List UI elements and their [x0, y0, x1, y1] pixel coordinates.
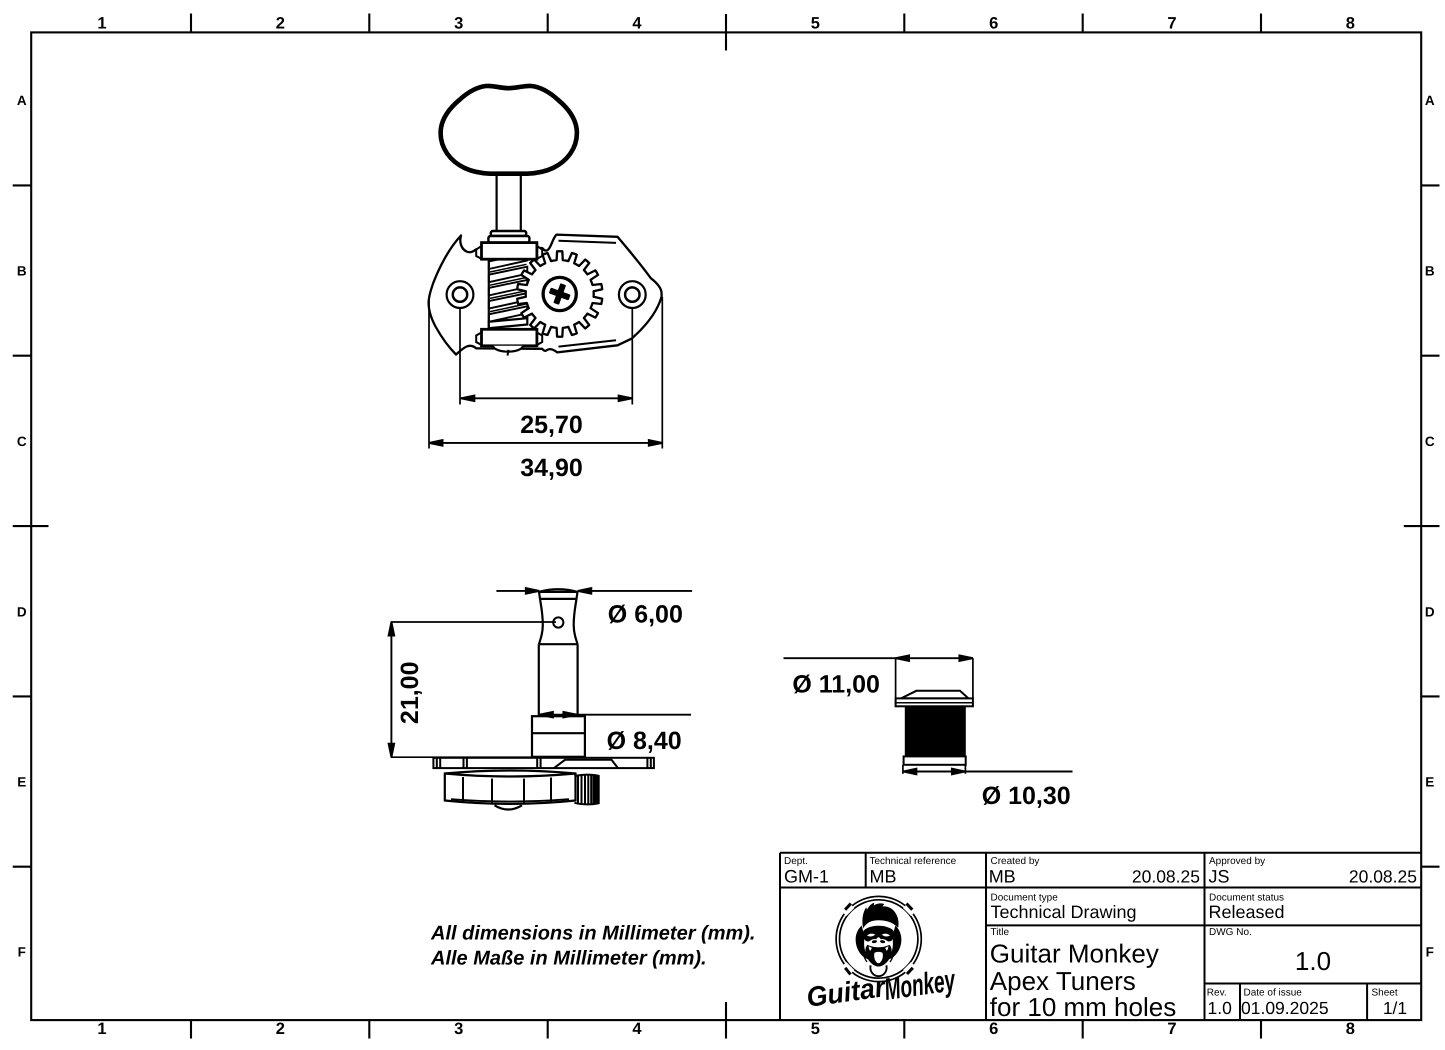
svg-text:Approved by: Approved by [1209, 856, 1265, 867]
svg-text:8: 8 [1346, 1020, 1355, 1038]
svg-text:21,00: 21,00 [396, 662, 424, 725]
svg-text:Dept.: Dept. [784, 856, 808, 867]
svg-text:F: F [18, 945, 26, 960]
svg-text:Released: Released [1209, 902, 1285, 922]
svg-text:GM-1: GM-1 [784, 867, 829, 887]
svg-text:6: 6 [989, 1020, 998, 1038]
svg-text:7: 7 [1167, 15, 1176, 33]
svg-text:Ø 10,30: Ø 10,30 [982, 782, 1071, 810]
svg-text:4: 4 [632, 1020, 642, 1038]
svg-text:A: A [17, 93, 27, 108]
svg-text:01.09.2025: 01.09.2025 [1241, 998, 1329, 1018]
svg-text:All dimensions in Millimeter (: All dimensions in Millimeter (mm). [430, 922, 756, 944]
svg-text:3: 3 [454, 1020, 463, 1038]
svg-text:E: E [1425, 775, 1434, 790]
svg-text:Sheet: Sheet [1372, 987, 1398, 998]
svg-text:C: C [17, 434, 27, 449]
svg-text:1: 1 [97, 15, 106, 33]
svg-text:Title: Title [991, 927, 1010, 938]
svg-text:B: B [1425, 263, 1435, 278]
svg-text:20.08.25: 20.08.25 [1349, 867, 1417, 887]
svg-text:25,70: 25,70 [520, 411, 583, 439]
svg-text:B: B [17, 263, 27, 278]
svg-text:Ø 11,00: Ø 11,00 [792, 671, 880, 699]
svg-text:1: 1 [97, 1020, 106, 1038]
svg-text:20.08.25: 20.08.25 [1132, 867, 1200, 887]
svg-text:3: 3 [454, 15, 463, 33]
svg-text:1/1: 1/1 [1383, 998, 1407, 1018]
svg-text:F: F [1426, 945, 1434, 960]
svg-text:Alle Maße in Millimeter (mm).: Alle Maße in Millimeter (mm). [430, 947, 707, 969]
svg-text:C: C [1425, 434, 1435, 449]
svg-text:Ø 6,00: Ø 6,00 [608, 601, 683, 629]
svg-text:5: 5 [811, 15, 820, 33]
svg-text:4: 4 [632, 15, 642, 33]
svg-text:7: 7 [1167, 1020, 1176, 1038]
svg-text:Guitar Monkey: Guitar Monkey [990, 938, 1159, 968]
svg-text:1.0: 1.0 [1208, 998, 1233, 1018]
svg-text:Ø 8,40: Ø 8,40 [607, 727, 682, 755]
svg-text:MB: MB [870, 867, 897, 887]
svg-text:JS: JS [1209, 867, 1230, 887]
svg-text:2: 2 [276, 1020, 285, 1038]
svg-text:DWG No.: DWG No. [1209, 927, 1252, 938]
svg-text:34,90: 34,90 [520, 454, 583, 482]
svg-text:Technical reference: Technical reference [870, 856, 957, 867]
svg-text:5: 5 [811, 1020, 820, 1038]
svg-text:MB: MB [989, 867, 1016, 887]
svg-text:D: D [1425, 604, 1435, 619]
svg-text:for 10 mm holes: for 10 mm holes [990, 992, 1176, 1022]
svg-text:E: E [17, 775, 26, 790]
svg-text:1.0: 1.0 [1295, 946, 1331, 976]
svg-text:A: A [1425, 93, 1435, 108]
svg-text:Technical Drawing: Technical Drawing [991, 902, 1137, 922]
svg-text:2: 2 [276, 15, 285, 33]
svg-text:Rev.: Rev. [1207, 987, 1227, 998]
svg-text:Created by: Created by [991, 856, 1040, 867]
svg-text:Date of issue: Date of issue [1244, 987, 1303, 998]
svg-text:D: D [17, 604, 27, 619]
svg-text:6: 6 [989, 15, 998, 33]
svg-text:8: 8 [1346, 15, 1355, 33]
